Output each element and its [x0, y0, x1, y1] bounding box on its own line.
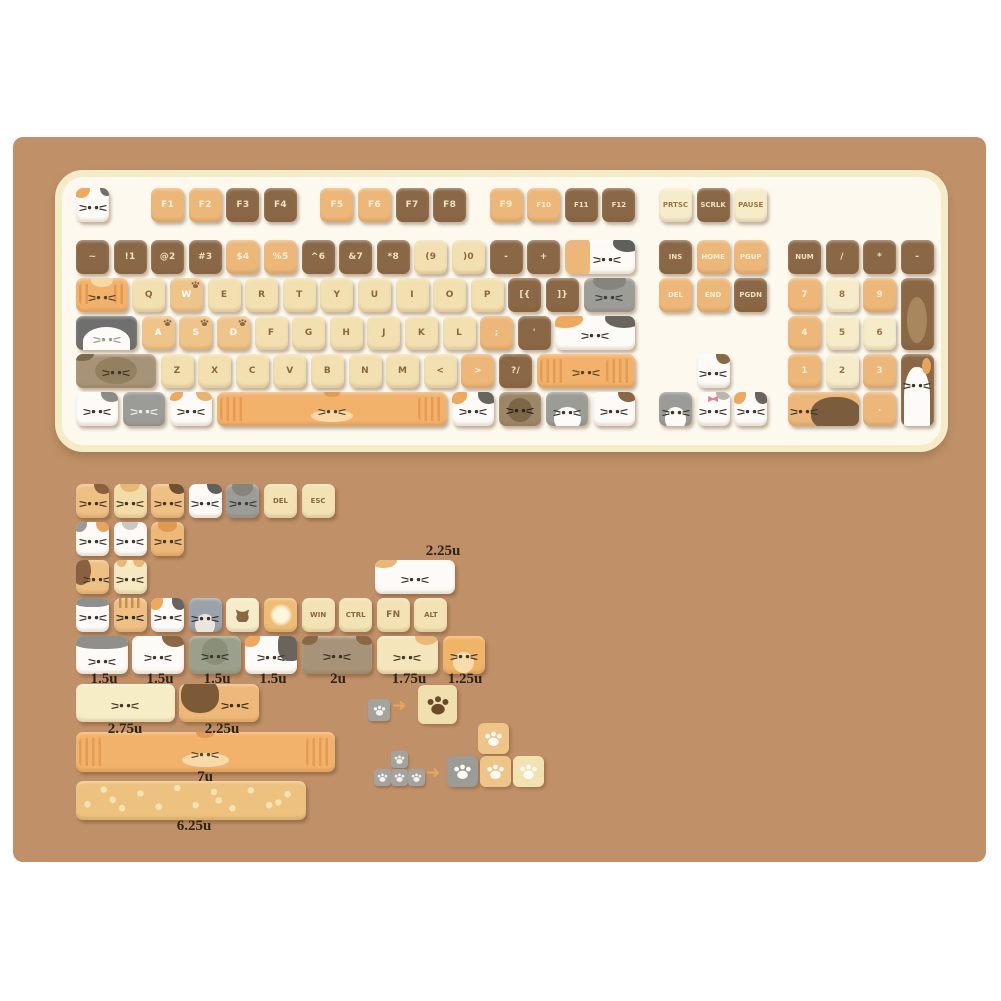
key-: +	[527, 240, 560, 274]
key-: *	[863, 240, 896, 274]
fur-patch	[811, 397, 859, 426]
key-: ;	[480, 316, 513, 350]
key-legend: R	[258, 290, 265, 300]
key-6: ^6	[302, 240, 335, 274]
cat-face	[116, 537, 144, 547]
fur-patch	[91, 278, 114, 287]
key-legend: .	[878, 404, 882, 414]
paw-icon	[411, 772, 422, 783]
novelty-cat-key-a3	[151, 484, 184, 518]
cat-face	[154, 499, 182, 509]
key-y: Y	[320, 278, 353, 312]
paw-keycap-arrow-cluster	[447, 756, 478, 787]
tabby-stripes	[606, 359, 632, 383]
key-1: 1	[788, 354, 821, 388]
key-legend: T	[296, 290, 302, 300]
key-legend: 5	[839, 328, 846, 338]
paw-keycap-small	[408, 769, 425, 786]
key-b: B	[311, 354, 344, 388]
key-pgdn: PGDN	[734, 278, 767, 312]
key-legend: E	[221, 290, 227, 300]
key-: -	[490, 240, 523, 274]
key-t: T	[283, 278, 316, 312]
key-legend: CTRL	[346, 611, 366, 619]
novelty-cat-key-c2	[114, 560, 147, 594]
cat-face-icon	[116, 499, 144, 509]
cat-face-icon	[699, 369, 727, 379]
novelty-cat-key-calico	[734, 392, 767, 426]
novelty-cat-key-a2	[114, 484, 147, 518]
key-e: E	[208, 278, 241, 312]
key-3: 3	[863, 354, 896, 388]
paw-icon	[200, 318, 209, 327]
novelty-cat-key-e4	[245, 636, 297, 674]
cat-face-icon	[191, 750, 219, 760]
cat-face-icon	[191, 614, 219, 624]
fur-patch	[96, 522, 109, 532]
fur-patch	[116, 560, 127, 567]
key-legend: B	[324, 366, 331, 376]
key-legend: K	[418, 328, 425, 338]
paw-icon	[238, 318, 247, 327]
size-label: 1.5u	[203, 671, 230, 688]
key-legend: DEL	[273, 497, 288, 505]
cat-face	[737, 407, 765, 417]
key-legend: ^6	[311, 252, 325, 262]
paw-print-spacebar	[76, 781, 306, 820]
novelty-cat-key-shift	[76, 354, 156, 388]
key-p: P	[471, 278, 504, 312]
key-4: $4	[226, 240, 259, 274]
size-label: 2.25u	[205, 721, 240, 738]
cat-face	[506, 406, 534, 416]
cat-face	[593, 255, 621, 265]
key-h: H	[330, 316, 363, 350]
key-legend: SCRLK	[700, 201, 725, 209]
cat-face-icon	[83, 575, 109, 585]
key-z: Z	[161, 354, 194, 388]
key-legend: PGUP	[740, 253, 762, 261]
key-del: DEL	[659, 278, 692, 312]
paw-icon	[163, 318, 172, 327]
key-legend: F10	[536, 201, 551, 209]
cat-face-icon	[177, 407, 205, 417]
cat-face-icon	[903, 381, 931, 391]
cat-face	[154, 537, 182, 547]
fur-patch	[122, 522, 139, 530]
cat-face-icon	[144, 653, 172, 663]
key-legend: %5	[273, 252, 289, 262]
key-legend: Z	[174, 366, 181, 376]
cat-face-icon	[450, 652, 478, 662]
cat-face	[903, 381, 931, 391]
key-f2: F2	[189, 188, 222, 222]
key-: ?/	[499, 354, 532, 388]
cat-head-icon	[235, 609, 250, 622]
paw-icon	[191, 280, 200, 289]
key-legend: HOME	[701, 253, 725, 261]
key-legend: J	[382, 328, 386, 338]
cat-face	[257, 653, 285, 663]
key-legend: P	[484, 290, 491, 300]
novelty-cat-key-numplus	[901, 278, 934, 350]
size-label: 2.75u	[108, 721, 143, 738]
novelty-cat-key-space	[217, 392, 447, 426]
tabby-stripes	[418, 397, 444, 421]
key-5: 5	[826, 316, 859, 350]
key-legend: F7	[406, 200, 419, 210]
key-legend: #3	[198, 252, 212, 262]
novelty-cat-key-e7	[443, 636, 485, 674]
cat-face	[83, 575, 109, 585]
key-g: G	[292, 316, 325, 350]
fur-patch	[76, 188, 90, 198]
fur-patch	[196, 392, 212, 401]
key-w: W	[170, 278, 203, 312]
cat-face	[79, 203, 107, 213]
key-j: J	[367, 316, 400, 350]
cat-face-icon	[593, 255, 621, 265]
key-legend: 3	[876, 366, 883, 376]
key-alt: ALT	[414, 598, 447, 632]
cat-face	[79, 537, 107, 547]
fur-patch	[169, 484, 184, 494]
cat-face	[323, 652, 351, 662]
key-fn: FN	[377, 598, 410, 632]
key-legend: W	[181, 290, 191, 300]
cat-face-icon	[116, 575, 144, 585]
key-legend: F6	[368, 200, 381, 210]
fur-patch	[172, 598, 185, 610]
fur-patch	[734, 392, 746, 404]
novelty-cat-key-whitecatB	[593, 392, 635, 426]
novelty-cat-key-b1	[76, 522, 109, 556]
key-legend: G	[305, 328, 313, 338]
paw-icon	[191, 280, 200, 289]
key-f9: F9	[490, 188, 523, 222]
key-legend: PAUSE	[738, 201, 763, 209]
key-legend: NUM	[795, 253, 814, 261]
novelty-cat-key-e1	[76, 636, 128, 674]
key-legend: L	[456, 328, 462, 338]
key-legend: 4	[801, 328, 808, 338]
cat-face	[116, 499, 144, 509]
novelty-cat-key-esc	[76, 188, 109, 222]
paw-icon	[163, 318, 172, 327]
cat-face	[116, 613, 144, 623]
key-legend: -	[504, 252, 508, 262]
cat-face	[116, 575, 144, 585]
paw-icon	[519, 762, 538, 781]
key-0: )0	[452, 240, 485, 274]
key-9: (9	[414, 240, 447, 274]
cat-face-icon	[600, 407, 628, 417]
size-label: 1.5u	[259, 671, 286, 688]
cat-face	[595, 293, 623, 303]
fur-patch	[120, 484, 140, 492]
novelty-cat-key-a1	[76, 484, 109, 518]
key-legend: ]}	[557, 290, 568, 300]
tabby-stripes	[540, 359, 566, 383]
key-4: 4	[788, 316, 821, 350]
novelty-cat-key-c1	[76, 560, 109, 594]
cat-face	[401, 575, 429, 585]
cat-face	[201, 652, 229, 662]
key-a: A	[142, 316, 175, 350]
novelty-cat-key-b3	[151, 522, 184, 556]
key-prtsc: PRTSC	[659, 188, 692, 222]
key-f10: F10	[527, 188, 560, 222]
fur-patch	[555, 316, 583, 328]
novelty-cat-key-whitecatB	[697, 354, 730, 388]
key-legend: F5	[330, 200, 343, 210]
paw-keycap-small	[391, 769, 408, 786]
novelty-cat-key-d1	[76, 598, 109, 632]
key-f8: F8	[433, 188, 466, 222]
key-end: END	[697, 278, 730, 312]
cat-belly	[907, 297, 927, 343]
paw-keycap-small	[374, 769, 391, 786]
cat-face-icon	[506, 406, 534, 416]
fur-patch	[133, 560, 144, 567]
key-i: I	[396, 278, 429, 312]
paw-icon	[426, 693, 450, 717]
novelty-cat-key-calico	[452, 392, 494, 426]
key-num: NUM	[788, 240, 821, 274]
key-ctrl: CTRL	[339, 598, 372, 632]
novelty-cat-key-e3	[189, 636, 241, 674]
key-: [{	[508, 278, 541, 312]
fur-patch	[452, 392, 467, 404]
key-legend: Y	[333, 290, 340, 300]
tabby-stripes	[119, 598, 141, 608]
key-legend: 6	[876, 328, 883, 338]
novelty-cat-key-caps	[76, 316, 137, 350]
cat-face	[102, 368, 130, 378]
fur-patch	[170, 392, 183, 401]
cat-face-icon	[459, 407, 487, 417]
fur-patch	[101, 392, 118, 402]
paw-keycap-arrow-cluster	[480, 756, 511, 787]
key-: /	[826, 240, 859, 274]
key-legend: O	[446, 290, 454, 300]
key-legend: *8	[388, 252, 400, 262]
novelty-cat-key-whitecatB	[132, 636, 184, 674]
size-label: 1.5u	[146, 671, 173, 688]
cat-face-icon	[102, 368, 130, 378]
fur-patch	[76, 598, 109, 607]
key-f7: F7	[396, 188, 429, 222]
cat-face	[229, 499, 257, 509]
cat-face-icon	[257, 653, 285, 663]
cat-face-icon	[699, 407, 727, 417]
cat-face	[88, 293, 116, 303]
cat-face-icon	[79, 203, 107, 213]
cat-face-icon	[790, 407, 818, 417]
novelty-cat-key-numenter	[901, 354, 934, 426]
paw-icon	[453, 762, 472, 781]
novelty-cat-key-bluecat	[189, 598, 222, 632]
cat-face-icon	[79, 537, 107, 547]
fur-patch	[324, 392, 340, 397]
paw-icon	[373, 704, 386, 717]
paw-icon	[394, 754, 405, 765]
fur-patch	[94, 484, 109, 494]
key-8: *8	[377, 240, 410, 274]
key-legend: FN	[386, 610, 400, 620]
fur-patch	[302, 636, 318, 645]
key-pause: PAUSE	[734, 188, 767, 222]
key-ins: INS	[659, 240, 692, 274]
cat-face-icon	[229, 499, 257, 509]
fur-patch	[76, 636, 128, 649]
cat-face	[93, 335, 121, 345]
cat-face-icon	[130, 407, 158, 417]
key-f4: F4	[264, 188, 297, 222]
cat-face	[88, 657, 116, 667]
novelty-cat-key-calico	[555, 316, 635, 350]
cat-face	[154, 613, 182, 623]
novelty-cat-key-graytabby	[584, 278, 636, 312]
paw-icon	[238, 318, 247, 327]
key-3: #3	[189, 240, 222, 274]
key-legend: '	[533, 328, 536, 338]
fur-patch	[716, 354, 730, 364]
key-legend: 7	[801, 290, 808, 300]
key-u: U	[358, 278, 391, 312]
cat-face-icon	[116, 613, 144, 623]
cat-face-icon	[662, 408, 690, 418]
key-legend: WIN	[310, 611, 326, 619]
cat-face	[459, 407, 487, 417]
key-win: WIN	[302, 598, 335, 632]
novelty-cat-key-d5	[226, 598, 259, 632]
fur-patch	[76, 354, 94, 361]
key-r: R	[245, 278, 278, 312]
key-f6: F6	[358, 188, 391, 222]
key-: .	[863, 392, 896, 426]
fur-patch	[181, 684, 219, 713]
key-legend: END	[705, 291, 721, 299]
key-m: M	[386, 354, 419, 388]
cat-face-icon	[116, 537, 144, 547]
key-: <	[424, 354, 457, 388]
key-legend: $4	[236, 252, 249, 262]
cat-face-icon	[323, 652, 351, 662]
key-v: V	[273, 354, 306, 388]
key-f1: F1	[151, 188, 184, 222]
cat-face	[144, 653, 172, 663]
key-legend: &7	[348, 252, 363, 262]
cat-face-icon	[88, 657, 116, 667]
key-legend: F4	[274, 200, 287, 210]
novelty-cat-key-backsp	[565, 240, 636, 274]
key-legend: N	[361, 366, 369, 376]
paw-icon	[486, 762, 505, 781]
key-legend: 1	[801, 366, 808, 376]
cat-face-icon	[595, 293, 623, 303]
fur-patch	[716, 392, 729, 400]
arrow-icon: ➜	[426, 765, 440, 782]
cat-face	[600, 407, 628, 417]
cat-face	[111, 701, 139, 711]
key-legend: X	[211, 366, 218, 376]
key-legend: !1	[125, 252, 136, 262]
fur-patch	[904, 367, 930, 426]
novelty-cat-key-graycat	[123, 392, 165, 426]
key-legend: DEL	[668, 291, 683, 299]
key-legend: PGDN	[739, 291, 762, 299]
cat-face-icon	[572, 368, 600, 378]
paw-keycap-small	[391, 751, 408, 768]
key-legend: INS	[669, 253, 683, 261]
key-legend: F12	[612, 201, 627, 209]
cat-face	[581, 331, 609, 341]
key-f3: F3	[226, 188, 259, 222]
fur-patch	[151, 598, 163, 610]
arrow-icon: ➜	[392, 698, 406, 715]
cat-face-icon	[318, 407, 346, 417]
paw-icon	[200, 318, 209, 327]
fur-patch	[245, 636, 260, 647]
key-del: DEL	[264, 484, 297, 518]
key-legend: -	[915, 252, 919, 262]
fur-patch	[232, 484, 253, 496]
novelty-cat-key-graycatW	[546, 392, 588, 426]
key-legend: 9	[876, 290, 883, 300]
key-: ]}	[546, 278, 579, 312]
fur-patch	[356, 636, 372, 645]
cat-face-icon	[221, 701, 249, 711]
key-home: HOME	[697, 240, 730, 274]
key-legend: F11	[574, 201, 589, 209]
novelty-cat-key-num0	[788, 392, 859, 426]
key-f12: F12	[602, 188, 635, 222]
novelty-cat-key-b2	[114, 522, 147, 556]
novelty-cat-key-d6	[264, 598, 297, 632]
key-pgup: PGUP	[734, 240, 767, 274]
cat-face-icon	[737, 407, 765, 417]
key-7: 7	[788, 278, 821, 312]
cat-face	[191, 614, 219, 624]
novelty-cat-key-f2n	[179, 684, 259, 722]
key-scrlk: SCRLK	[697, 188, 730, 222]
key-7: &7	[339, 240, 372, 274]
fur-patch	[375, 560, 397, 568]
paw-keycap-large	[418, 685, 457, 724]
cat-face-icon	[88, 293, 116, 303]
cat-face	[221, 701, 249, 711]
key-legend: V	[286, 366, 293, 376]
paw-keycap-small	[368, 699, 390, 721]
key-2: @2	[151, 240, 184, 274]
fur-patch	[158, 522, 176, 532]
key-9: 9	[863, 278, 896, 312]
novelty-cat-key-graytabby	[226, 484, 259, 518]
fur-patch	[478, 392, 494, 404]
cat-face	[191, 750, 219, 760]
glow-circle-icon	[270, 604, 292, 626]
key-legend: M	[398, 366, 407, 376]
cat-face	[177, 407, 205, 417]
key-legend: @2	[160, 252, 176, 262]
fur-patch	[415, 636, 438, 645]
fur-patch	[100, 188, 109, 196]
tabby-stripes	[306, 738, 332, 767]
cat-face-icon	[401, 575, 429, 585]
fur-patch	[162, 636, 184, 647]
key-legend: ~	[89, 252, 97, 262]
